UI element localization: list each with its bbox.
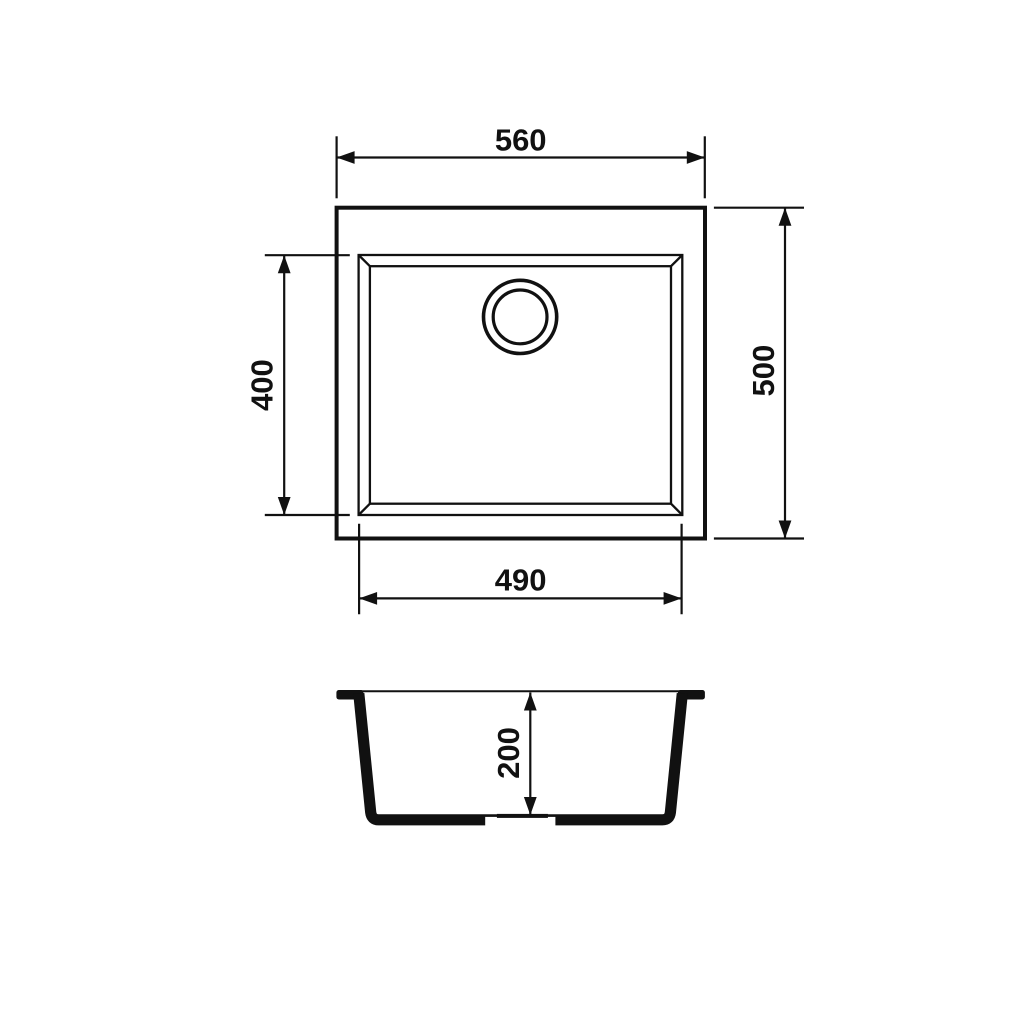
svg-text:200: 200 xyxy=(491,727,526,779)
svg-text:400: 400 xyxy=(245,359,280,411)
svg-text:490: 490 xyxy=(495,563,547,598)
svg-text:500: 500 xyxy=(746,345,781,397)
svg-text:560: 560 xyxy=(495,123,547,158)
